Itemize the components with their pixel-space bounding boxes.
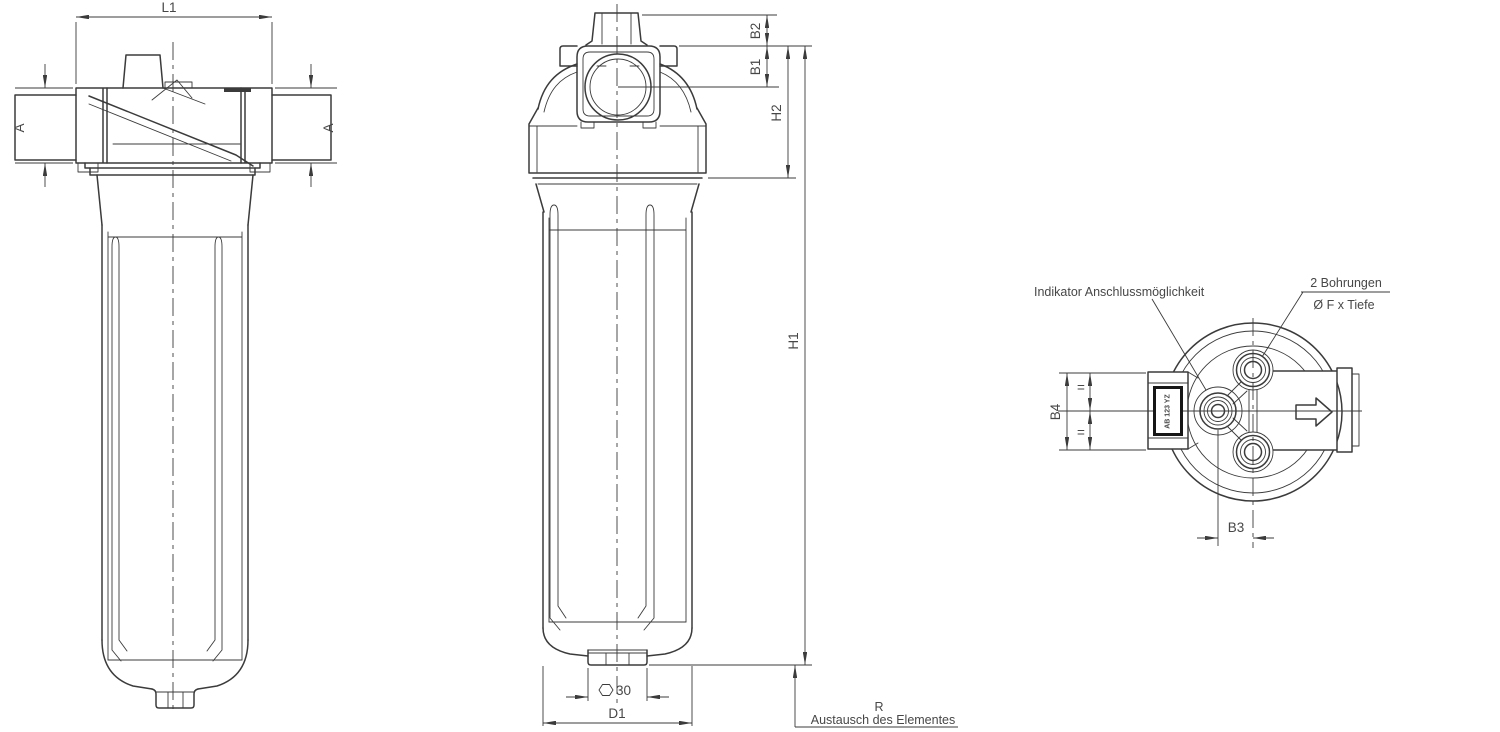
bowl-rib-left bbox=[112, 237, 127, 661]
note-r-symbol: R bbox=[874, 700, 883, 714]
right-flange bbox=[241, 88, 272, 163]
front-head-outline bbox=[529, 108, 706, 173]
dimension-label-hex: 30 bbox=[616, 683, 631, 698]
dimension-label-h2: H2 bbox=[769, 104, 784, 121]
dimension-label-a-right: A bbox=[321, 123, 336, 132]
vent-plug-mark bbox=[224, 88, 251, 92]
dimension-label-l1: L1 bbox=[161, 0, 176, 15]
side-view: L1 A A bbox=[12, 0, 337, 712]
indicator-stub bbox=[123, 55, 163, 88]
head-rib-diagonal-2 bbox=[89, 104, 231, 161]
bowl-taper bbox=[97, 175, 253, 225]
left-flange bbox=[76, 88, 107, 163]
dimension-label-a-left: A bbox=[12, 123, 27, 132]
port-boss bbox=[577, 46, 660, 122]
dimension-a-left: A bbox=[12, 64, 73, 187]
front-drain-nut bbox=[588, 650, 647, 665]
dimension-h1: H1 bbox=[786, 46, 805, 665]
dimension-label-d1: D1 bbox=[608, 706, 625, 721]
note-bolt-holes: 2 Bohrungen Ø F x Tiefe bbox=[1262, 276, 1390, 357]
indicator-label-text: AB 123 YZ bbox=[1165, 394, 1172, 429]
drain-nut-facets bbox=[156, 692, 194, 708]
front-bowl-inner bbox=[549, 218, 686, 622]
note-indicator-text: Indikator Anschlussmöglichkeit bbox=[1034, 285, 1205, 299]
indicator-label-plate: AB 123 YZ bbox=[1155, 388, 1182, 435]
dimension-b4: B4 = = bbox=[1048, 373, 1146, 450]
port-boss-inner bbox=[583, 52, 654, 116]
front-head-inner bbox=[529, 126, 706, 172]
dimension-label-h1: H1 bbox=[786, 332, 801, 349]
dimension-h2: H2 bbox=[769, 46, 788, 178]
dimension-hex-30: 30 bbox=[566, 668, 669, 701]
head-dome-inner bbox=[544, 72, 691, 112]
head-dome bbox=[538, 64, 697, 109]
equal-mark-top: = bbox=[1077, 380, 1085, 395]
dimension-label-b1: B1 bbox=[748, 59, 763, 76]
front-bowl-walls bbox=[543, 212, 692, 628]
technical-drawing-filter: L1 A A bbox=[0, 0, 1500, 732]
dimension-b1: B1 bbox=[748, 46, 767, 87]
dimension-label-b3: B3 bbox=[1228, 520, 1245, 535]
head-rib-detail bbox=[152, 80, 205, 104]
top-view: AB 123 YZ B4 = = B3 Indikator Anschlussm… bbox=[1034, 276, 1390, 548]
dimension-a-right: A bbox=[275, 64, 337, 187]
dimension-label-b2: B2 bbox=[748, 23, 763, 40]
port-boss-feet bbox=[581, 122, 656, 128]
outlet-block-cap bbox=[1352, 374, 1359, 446]
bowl-walls bbox=[102, 225, 248, 640]
head-outline bbox=[85, 88, 260, 168]
head-rib-diagonal bbox=[89, 96, 253, 166]
front-rib-left bbox=[550, 205, 566, 630]
bowl-rib-right bbox=[207, 237, 222, 661]
equal-mark-bottom: = bbox=[1077, 425, 1085, 440]
dimension-label-b4: B4 bbox=[1048, 403, 1063, 420]
dimension-b2: B2 bbox=[748, 15, 767, 46]
note-holes-line2: Ø F x Tiefe bbox=[1313, 298, 1374, 312]
drawing-canvas: L1 A A bbox=[0, 0, 1500, 732]
stub-boss bbox=[165, 82, 192, 88]
note-r-text: Austausch des Elementes bbox=[811, 713, 956, 727]
note-holes-line1: 2 Bohrungen bbox=[1310, 276, 1382, 290]
front-view: B2 B1 H2 H1 30 D1 bbox=[529, 4, 958, 727]
front-stub-inner bbox=[602, 13, 631, 44]
dimension-l1: L1 bbox=[76, 0, 272, 84]
front-stub bbox=[586, 13, 647, 45]
front-skirt bbox=[533, 178, 702, 212]
hexagon-symbol bbox=[599, 685, 613, 696]
note-element-replacement: R Austausch des Elementes bbox=[795, 665, 958, 727]
front-rib-right bbox=[638, 205, 654, 630]
clamp-band bbox=[90, 168, 255, 175]
front-bowl-bottom bbox=[543, 628, 692, 656]
front-drain-nut-facets bbox=[588, 650, 647, 665]
